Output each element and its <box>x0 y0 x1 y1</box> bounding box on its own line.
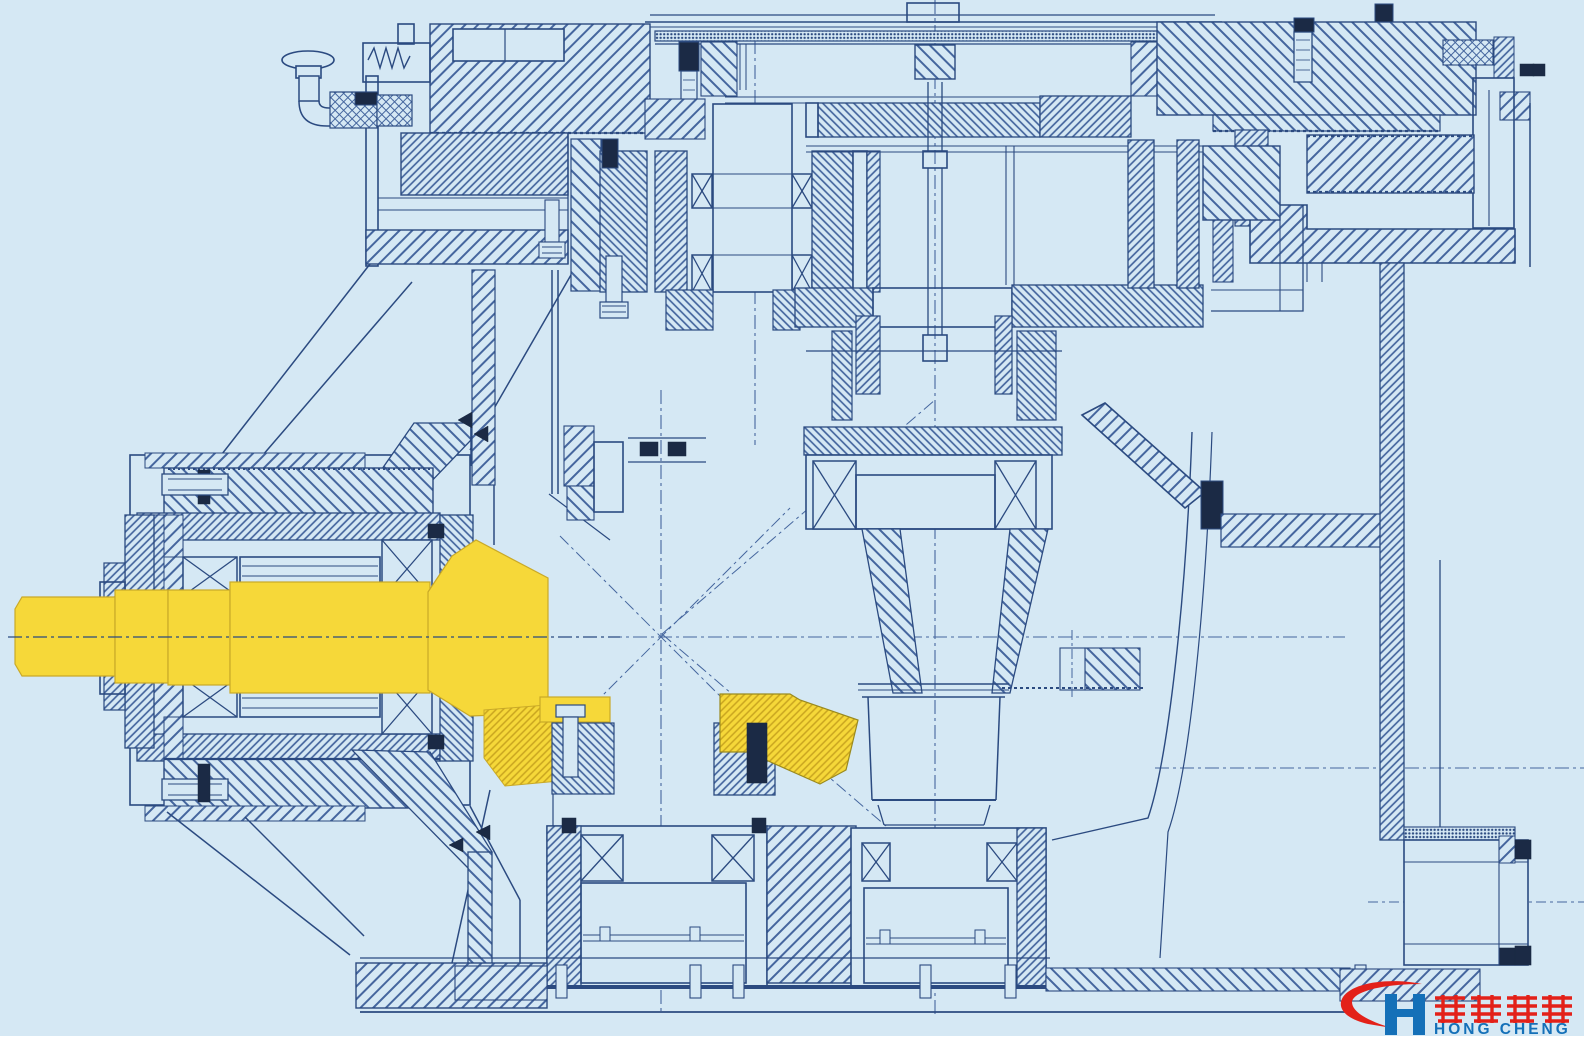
svg-text:HONG CHENG: HONG CHENG <box>1434 1021 1571 1036</box>
